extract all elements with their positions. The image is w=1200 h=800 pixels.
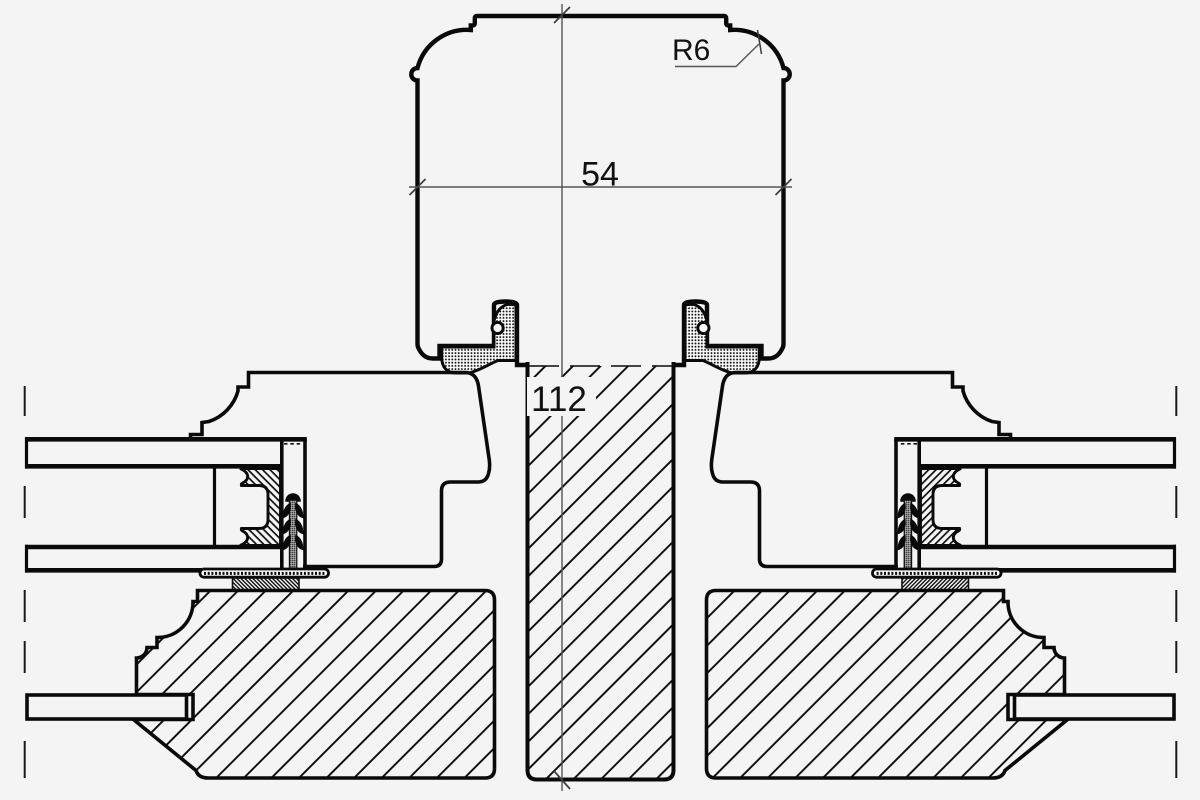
- svg-text:112: 112: [531, 380, 587, 419]
- svg-text:R6: R6: [672, 34, 710, 67]
- svg-text:54: 54: [581, 156, 619, 194]
